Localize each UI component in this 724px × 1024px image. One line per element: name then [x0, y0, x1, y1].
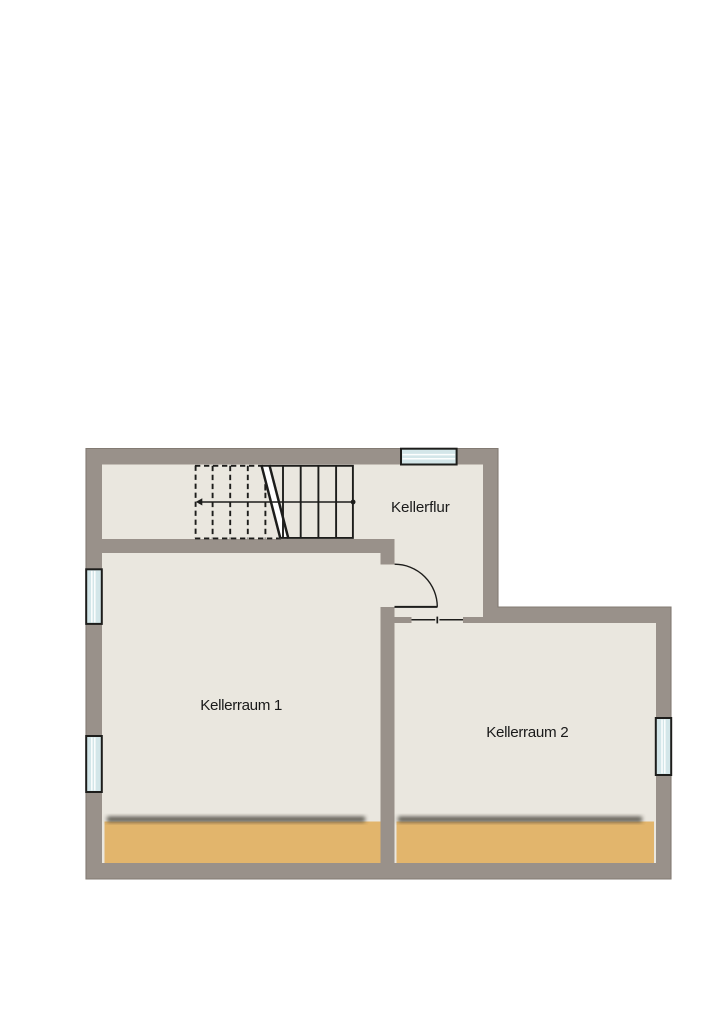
- svg-text:Kellerraum 1: Kellerraum 1: [200, 697, 282, 714]
- svg-text:Kellerraum 2: Kellerraum 2: [486, 724, 569, 741]
- svg-text:Kellerflur: Kellerflur: [391, 499, 450, 516]
